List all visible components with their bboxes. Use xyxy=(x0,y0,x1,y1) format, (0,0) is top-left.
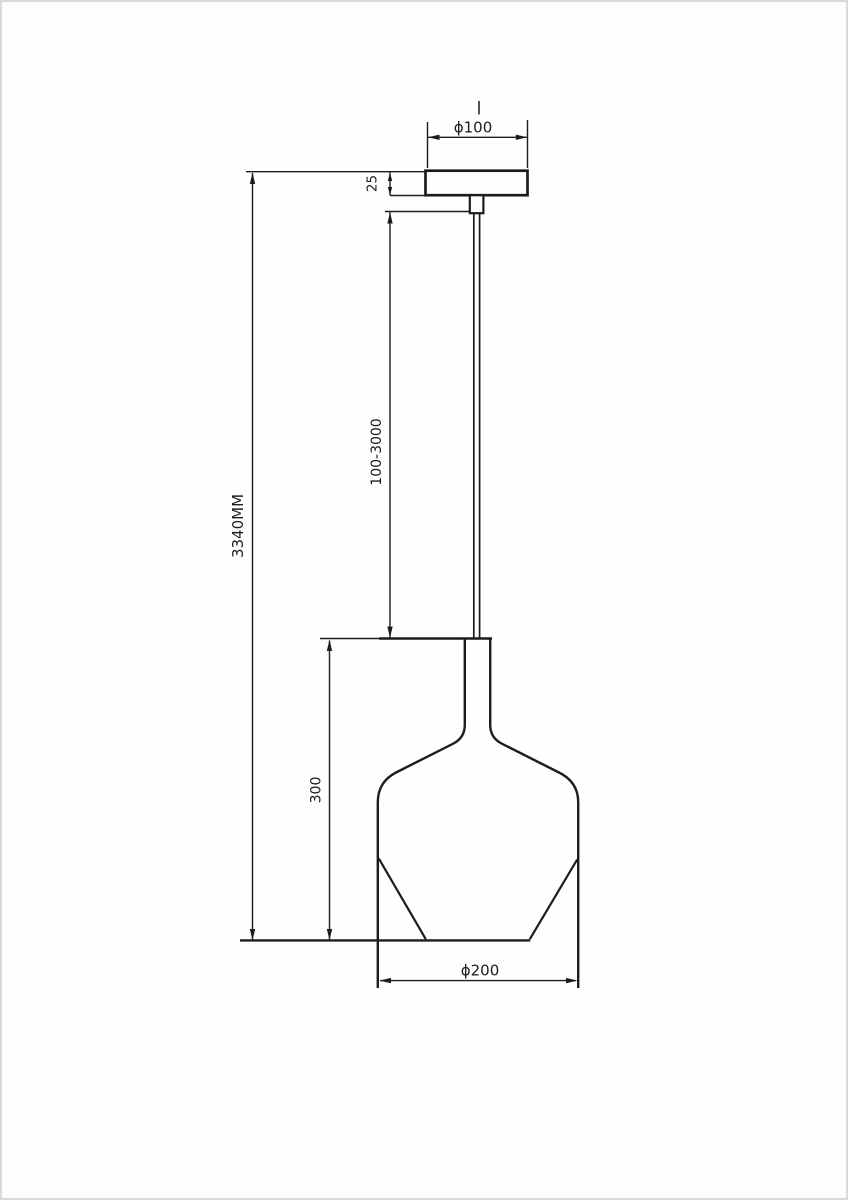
arrowhead-up-icon xyxy=(327,640,332,651)
shade-left-profile xyxy=(378,640,465,989)
cord-connector xyxy=(470,195,484,213)
dimension-canopy-diameter: ϕ100 xyxy=(428,119,528,169)
shade-bottom-taper-right xyxy=(530,860,577,940)
pendant-lamp-technical-drawing: ϕ100 25 100-3000 3340MM xyxy=(2,2,848,1200)
glass-shade xyxy=(240,639,578,989)
arrowhead-down-icon xyxy=(250,929,255,940)
shade-right-profile xyxy=(490,640,578,989)
arrowhead-down-icon xyxy=(387,627,392,638)
arrowhead-up-icon xyxy=(250,173,255,185)
canopy-diameter-label: ϕ100 xyxy=(454,119,493,137)
arrowhead-down-icon xyxy=(327,929,332,940)
shade-bottom-taper-left xyxy=(379,859,426,940)
canopy-height-label: 25 xyxy=(365,175,381,192)
arrowhead-right-icon xyxy=(566,978,578,983)
shade-height-label: 300 xyxy=(309,777,325,804)
total-height-label: 3340MM xyxy=(229,494,247,558)
dimension-canopy-height: 25 xyxy=(365,173,426,196)
arrowhead-up-icon xyxy=(388,173,392,182)
suspension-length-label: 100-3000 xyxy=(369,418,385,485)
ceiling-canopy xyxy=(426,171,528,196)
arrowhead-right-icon xyxy=(516,135,528,140)
arrowhead-left-icon xyxy=(428,135,440,140)
dimension-suspension-length: 100-3000 xyxy=(320,212,470,639)
arrowhead-up-icon xyxy=(387,212,392,223)
suspension-cable xyxy=(474,213,480,638)
arrowhead-left-icon xyxy=(380,978,392,983)
dimension-shade-diameter: ϕ200 xyxy=(380,962,578,984)
arrowhead-down-icon xyxy=(388,187,392,195)
drawing-page: ϕ100 25 100-3000 3340MM xyxy=(0,0,848,1200)
shade-diameter-label: ϕ200 xyxy=(461,962,500,980)
dimension-total-height: 3340MM xyxy=(229,172,426,941)
dimension-shade-height: 300 xyxy=(309,640,333,941)
